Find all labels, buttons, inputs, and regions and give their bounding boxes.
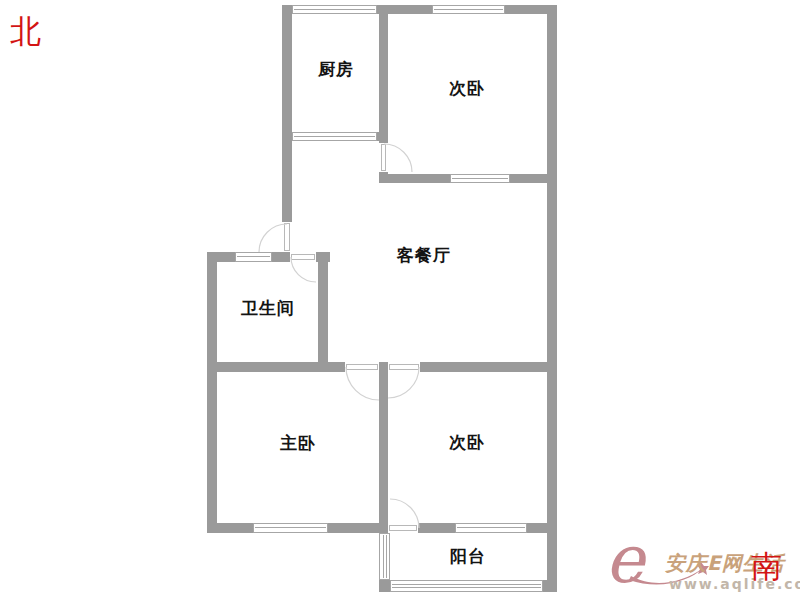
window [450,174,510,183]
wall [379,174,450,183]
wall [318,252,328,372]
wall [420,362,557,372]
room-label-master-bedroom: 主卧 [280,432,316,455]
room-label-kitchen: 厨房 [318,58,354,81]
entry-door-gap [282,222,292,252]
wall [547,5,557,592]
bathroom-door-gap [290,252,316,262]
compass-north-label: 北 [10,16,41,47]
floor-plan: 北 厨房次卧客餐厅卫生间主卧次卧阳台 e 安庆E网生活 www.aqlife.c… [0,0,800,600]
window [432,5,505,14]
wall [379,5,388,143]
window [235,252,272,262]
wall [328,523,388,533]
balcony-door-gap [388,523,418,533]
wall [527,523,557,533]
wall [510,174,557,183]
wall [272,252,290,262]
wall [207,252,217,533]
room-label-bedroom-north: 次卧 [449,77,485,100]
wall [207,362,345,372]
room-label-bathroom: 卫生间 [241,297,295,320]
wall [379,580,390,592]
wall [379,362,388,372]
window [292,132,377,141]
room-label-bedroom-south: 次卧 [449,431,485,454]
window [379,533,390,580]
wall [379,372,388,523]
bedroom-north-door-gap [379,143,388,172]
wall [543,580,557,592]
bedroom-north-door-arc [384,144,412,172]
wall [418,523,455,533]
window [253,523,328,533]
window [292,5,377,14]
watermark-logo-letter: e [605,526,648,598]
room-label-balcony: 阳台 [450,545,486,568]
master-bedroom-door-gap [345,362,379,372]
bedroom-south-door-gap [388,362,420,372]
window [455,523,527,533]
compass-south-label: 南 [751,551,782,582]
wall [282,5,292,222]
wall [207,523,253,533]
room-label-living-dining: 客餐厅 [397,244,451,267]
door-arcs-layer [0,0,800,600]
window [390,580,543,592]
